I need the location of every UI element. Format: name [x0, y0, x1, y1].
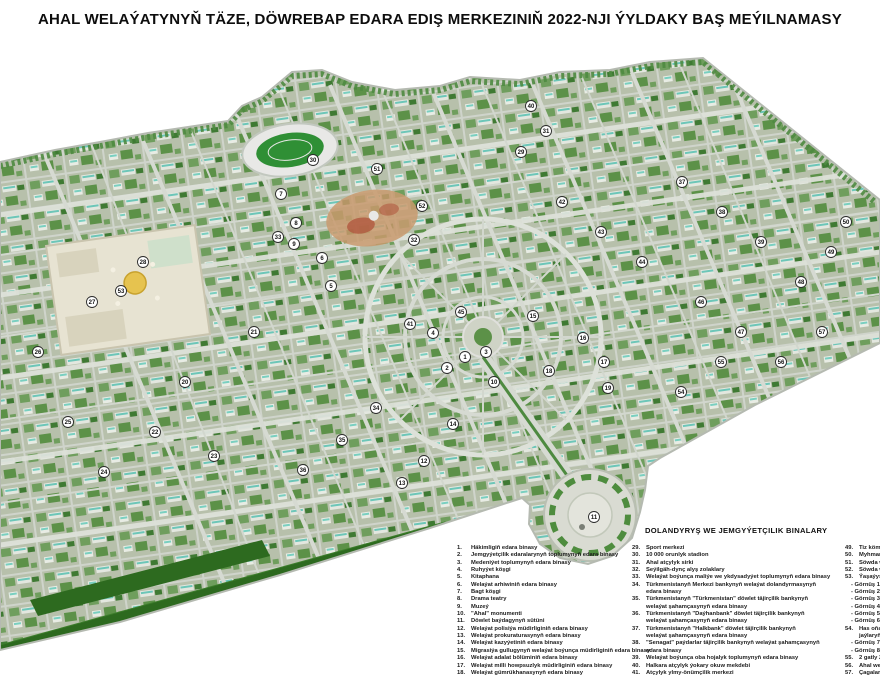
map-marker: 54 — [676, 387, 687, 398]
map-marker: 34 — [371, 403, 382, 414]
map-marker: 20 — [180, 377, 191, 388]
legend-heading: DOLANDYRYŞ WE JEMGYÝETÇILIK BINALARY — [645, 526, 827, 535]
map-marker: 37 — [677, 177, 688, 188]
svg-text:13: 13 — [399, 481, 406, 487]
map-marker: 30 — [308, 155, 319, 166]
map-marker: 40 — [526, 101, 537, 112]
svg-text:22: 22 — [152, 430, 159, 436]
svg-text:10: 10 — [491, 380, 498, 386]
svg-text:19: 19 — [605, 386, 612, 392]
map-marker: 9 — [289, 239, 300, 250]
svg-text:18: 18 — [546, 369, 553, 375]
map-marker: 27 — [87, 297, 98, 308]
map-marker: 7 — [276, 189, 287, 200]
map-marker: 24 — [99, 467, 110, 478]
map-marker: 36 — [298, 465, 309, 476]
svg-text:54: 54 — [678, 390, 685, 396]
map-marker: 21 — [249, 327, 260, 338]
svg-text:35: 35 — [339, 438, 346, 444]
svg-text:41: 41 — [407, 322, 414, 328]
svg-text:26: 26 — [35, 350, 42, 356]
map-marker: 31 — [541, 126, 552, 137]
map-marker: 25 — [63, 417, 74, 428]
svg-text:57: 57 — [819, 330, 826, 336]
legend-item: - Görnüş 2 - 7 — [845, 589, 880, 596]
legend-column-2: 29.Sport merkezi30.10 000 orunlyk stadio… — [632, 545, 848, 677]
legend-item: 35.Türkmenistanyň "Türkmenistan" döwlet … — [632, 596, 848, 603]
svg-text:24: 24 — [101, 470, 108, 476]
map-marker: 26 — [33, 347, 44, 358]
svg-text:56: 56 — [778, 360, 785, 366]
svg-text:28: 28 — [140, 260, 147, 266]
svg-text:32: 32 — [411, 238, 418, 244]
map-marker: 35 — [337, 435, 348, 446]
legend-item: 55.2 gatly 2 öýli j — [845, 655, 880, 662]
svg-text:38: 38 — [719, 210, 726, 216]
legend-item: 33.Welaýat boýunça maliýe we ykdysadyýet… — [632, 574, 848, 581]
legend-item: 36.Türkmenistanyň "Daýhanbank" döwlet tä… — [632, 611, 848, 618]
map-marker: 2 — [442, 363, 453, 374]
map-marker: 18 — [544, 366, 555, 377]
legend-item: 39.Welaýat boýunça oba hojalyk toplumyny… — [632, 655, 848, 662]
svg-text:53: 53 — [118, 289, 125, 295]
svg-text:16: 16 — [580, 336, 587, 342]
map-marker: 19 — [603, 383, 614, 394]
svg-text:20: 20 — [182, 380, 189, 386]
legend-item: 57.Çagalar dü — [845, 670, 880, 677]
legend-item: 54.Has oňaýly w — [845, 626, 880, 633]
legend-item: 29.Sport merkezi — [632, 545, 848, 552]
map-marker: 8 — [291, 218, 302, 229]
svg-text:36: 36 — [300, 468, 307, 474]
legend-item: welaýat şahamçasynyň edara binasy — [632, 618, 848, 625]
legend-item: welaýat şahamçasynyň edara binasy — [632, 633, 848, 640]
legend-item: - Görnüş 4 - 7 — [845, 604, 880, 611]
map-marker: 56 — [776, 357, 787, 368]
legend-item: 31.Ahal atçylyk sirki — [632, 560, 848, 567]
svg-text:17: 17 — [601, 360, 608, 366]
svg-text:47: 47 — [738, 330, 745, 336]
legend-item: 53.Ýaşaýyş jaýlar — [845, 574, 880, 581]
svg-text:12: 12 — [421, 459, 428, 465]
legend-item: 51.Söwda we dy — [845, 560, 880, 567]
map-marker: 28 — [138, 257, 149, 268]
legend-item: welaýat şahamçasynyň edara binasy — [632, 604, 848, 611]
svg-text:37: 37 — [679, 180, 686, 186]
map-marker: 32 — [409, 235, 420, 246]
svg-text:34: 34 — [373, 406, 380, 412]
svg-text:49: 49 — [828, 250, 835, 256]
legend-item: - Görnüş 8 - 7 — [845, 648, 880, 655]
svg-text:43: 43 — [598, 230, 605, 236]
legend-item: 32.Seýilgäh-dynç alyş zolaklary — [632, 567, 848, 574]
map-marker: 38 — [717, 207, 728, 218]
map-marker: 55 — [716, 357, 727, 368]
map-marker: 44 — [637, 257, 648, 268]
map-marker: 12 — [419, 456, 430, 467]
map-marker: 46 — [696, 297, 707, 308]
svg-text:50: 50 — [843, 220, 850, 226]
map-marker: 49 — [826, 247, 837, 258]
legend-item: 50.Myhmanhana — [845, 552, 880, 559]
legend-item: 38."Senagat" paýdarlar täjirçilik bankyn… — [632, 640, 848, 647]
svg-text:51: 51 — [374, 167, 381, 173]
map-marker: 29 — [516, 147, 527, 158]
svg-text:25: 25 — [65, 420, 72, 426]
map-marker: 39 — [756, 237, 767, 248]
legend-item: - Görnüş 6 - 9 — [845, 618, 880, 625]
legend-item: 41.Atçylyk ylmy-önümçilik merkezi — [632, 670, 848, 677]
map-marker: 10 — [489, 377, 500, 388]
svg-text:44: 44 — [639, 260, 646, 266]
map-marker: 45 — [456, 307, 467, 318]
map-marker: 42 — [557, 197, 568, 208]
map-marker: 53 — [116, 286, 127, 297]
svg-text:15: 15 — [530, 314, 537, 320]
legend-item: 49.Tiz kömek me — [845, 545, 880, 552]
map-marker: 13 — [397, 478, 408, 489]
legend-column-3: 49.Tiz kömek me50.Myhmanhana51.Söwda we … — [845, 545, 880, 677]
map-marker: 50 — [841, 217, 852, 228]
map-marker: 5 — [326, 281, 337, 292]
map-marker: 22 — [150, 427, 161, 438]
legend-item: 37.Türkmenistanyň "Halkbank" döwlet täji… — [632, 626, 848, 633]
svg-text:30: 30 — [310, 158, 317, 164]
legend-item: - Görnüş 3 - 7 — [845, 596, 880, 603]
svg-text:29: 29 — [518, 150, 525, 156]
map-marker: 48 — [796, 277, 807, 288]
legend-item: - Görnüş 5 - 9 — [845, 611, 880, 618]
svg-text:45: 45 — [458, 310, 465, 316]
legend-item: 40.Halkara atçylyk ýokary okuw mekdebi — [632, 663, 848, 670]
map-marker: 41 — [405, 319, 416, 330]
svg-text:46: 46 — [698, 300, 705, 306]
legend-item: edara binasy — [632, 648, 848, 655]
map-marker: 43 — [596, 227, 607, 238]
map-marker: 17 — [599, 357, 610, 368]
legend-item: - Görnüş 1 - 9 — [845, 582, 880, 589]
svg-text:52: 52 — [419, 204, 426, 210]
legend-item: - Görnüş 7 - 7 — [845, 640, 880, 647]
map-marker: 6 — [317, 253, 328, 264]
svg-text:27: 27 — [89, 300, 96, 306]
svg-text:11: 11 — [591, 515, 598, 521]
svg-text:48: 48 — [798, 280, 805, 286]
map-marker: 33 — [273, 232, 284, 243]
map-marker: 52 — [417, 201, 428, 212]
svg-text:21: 21 — [251, 330, 258, 336]
svg-text:55: 55 — [718, 360, 725, 366]
svg-text:42: 42 — [559, 200, 566, 206]
map-marker: 15 — [528, 311, 539, 322]
central-rings — [365, 219, 601, 455]
svg-text:14: 14 — [450, 422, 457, 428]
map-marker: 14 — [448, 419, 459, 430]
master-plan-page: AHAL WELAÝATYNYŇ TÄZE, DÖWREBAP EDARA ED… — [0, 0, 880, 680]
svg-text:33: 33 — [275, 235, 282, 241]
legend-item: 30.10 000 orunlyk stadion — [632, 552, 848, 559]
legend-item: 56.Ahal welaýat — [845, 663, 880, 670]
map-marker: 23 — [209, 451, 220, 462]
map-marker: 1 — [460, 352, 471, 363]
mosque-complex — [46, 225, 210, 355]
legend-item: 34.Türkmenistanyň Merkezi bankynyň welaý… — [632, 582, 848, 589]
map-marker: 51 — [372, 164, 383, 175]
map-marker: 3 — [481, 347, 492, 358]
legend-item: jaýlaryň topl — [845, 633, 880, 640]
map-marker: 11 — [589, 512, 600, 523]
legend-item: edara binasy — [632, 589, 848, 596]
svg-text:39: 39 — [758, 240, 765, 246]
svg-text:40: 40 — [528, 104, 535, 110]
map-marker: 47 — [736, 327, 747, 338]
map-marker: 4 — [428, 328, 439, 339]
map-marker: 16 — [578, 333, 589, 344]
map-marker: 57 — [817, 327, 828, 338]
svg-text:23: 23 — [211, 454, 218, 460]
svg-text:31: 31 — [543, 129, 550, 135]
